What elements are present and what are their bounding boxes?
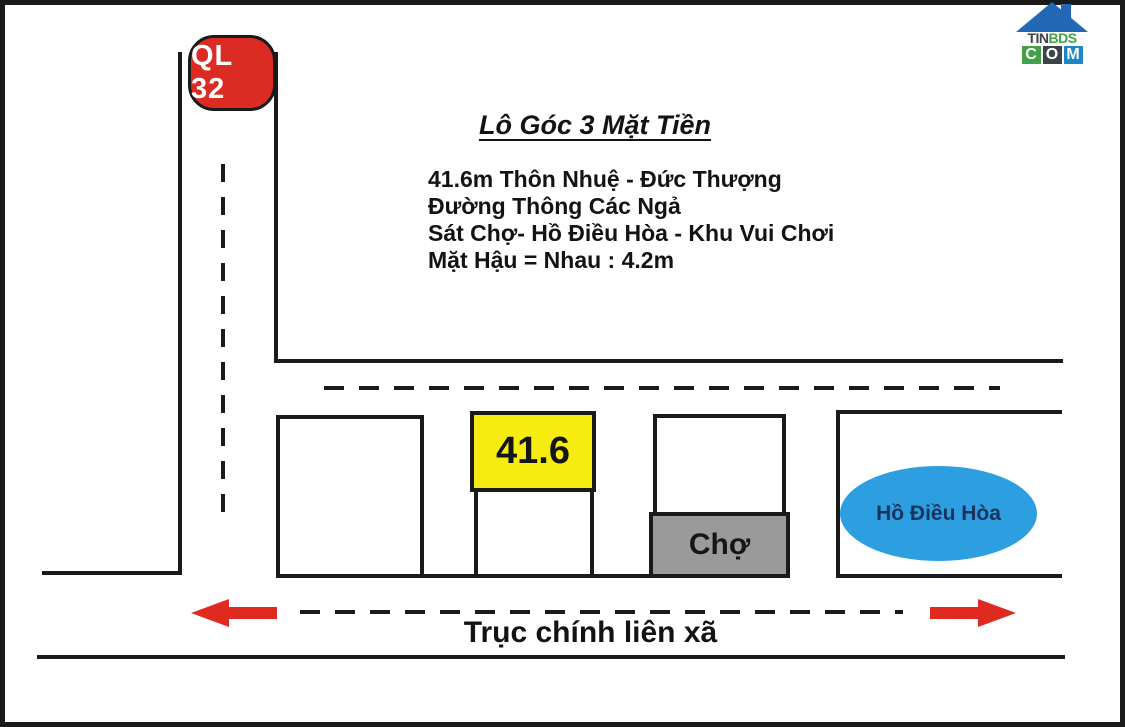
- house-icon: [1016, 2, 1088, 32]
- tinbds-logo: TINBDS C O M: [1012, 2, 1092, 64]
- logo-text: TINBDS: [1012, 32, 1092, 45]
- lake-area-bottom-edge: [836, 574, 1062, 578]
- side-road-right-edge: [274, 52, 278, 363]
- upper-road-dashed-line: [324, 386, 1000, 390]
- main-road-dashed-line: [300, 610, 903, 614]
- land-plot-diagram: TINBDS C O M QL 32 Lô Góc 3 Mặt Tiền 41.…: [0, 0, 1125, 727]
- main-road-label: Trục chính liên xã: [398, 616, 783, 650]
- market-label: Chợ: [649, 512, 790, 578]
- logo-letter-o: O: [1043, 46, 1062, 64]
- main-road-bottom-edge: [37, 655, 1065, 659]
- logo-com-row: C O M: [1012, 46, 1092, 64]
- description-line-1: 41.6m Thôn Nhuệ - Đức Thượng: [428, 166, 908, 193]
- description-line-4: Mặt Hậu = Nhau : 4.2m: [428, 247, 908, 274]
- upper-road-top-edge: [276, 359, 1063, 363]
- left-baseline: [42, 571, 180, 575]
- arrow-left-icon: [191, 599, 277, 627]
- logo-letter-c: C: [1022, 46, 1041, 64]
- logo-text-bds: BDS: [1049, 30, 1077, 46]
- lake-area-top-edge: [836, 410, 1062, 414]
- logo-text-tin: TIN: [1027, 30, 1048, 46]
- empty-plot-box: [276, 415, 424, 578]
- logo-letter-m: M: [1064, 46, 1083, 64]
- side-road-left-edge: [178, 52, 182, 575]
- highway-badge-ql32: QL 32: [188, 35, 276, 111]
- listed-plot-area-label: 41.6: [470, 411, 596, 492]
- lake-ellipse: Hồ Điều Hòa: [840, 466, 1037, 561]
- description-line-2: Đường Thông Các Ngả: [428, 193, 908, 220]
- arrow-right-icon: [930, 599, 1016, 627]
- description-block: 41.6m Thôn Nhuệ - Đức Thượng Đường Thông…: [428, 166, 908, 274]
- side-road-center-dashed-line: [221, 164, 225, 518]
- diagram-title: Lô Góc 3 Mặt Tiền: [430, 110, 760, 141]
- lake-area-left-edge: [836, 410, 840, 578]
- description-line-3: Sát Chợ- Hồ Điều Hòa - Khu Vui Chơi: [428, 220, 908, 247]
